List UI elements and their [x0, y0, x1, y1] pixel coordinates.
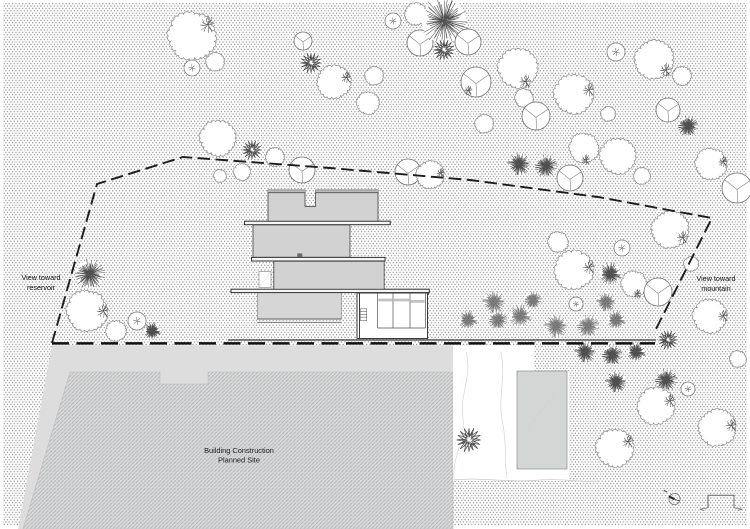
svg-text:Planned Site: Planned Site	[218, 456, 260, 465]
svg-text:View toward: View toward	[21, 273, 60, 282]
svg-text:reservoir: reservoir	[27, 283, 56, 292]
svg-text:mountain: mountain	[701, 284, 731, 293]
svg-text:View toward: View toward	[696, 274, 735, 283]
svg-text:Building Construction: Building Construction	[204, 446, 274, 455]
